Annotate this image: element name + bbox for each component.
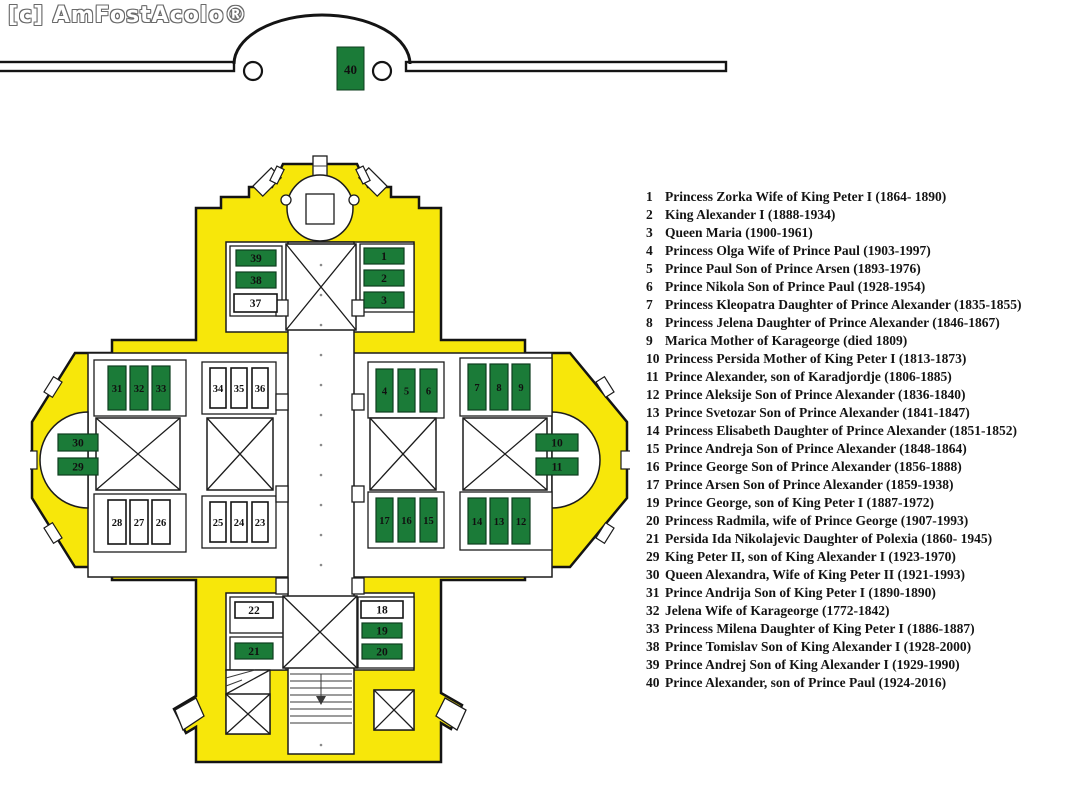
altar-table	[306, 194, 334, 224]
legend-entry-number: 10	[646, 351, 665, 369]
pier-right-outer	[463, 418, 547, 490]
legend-entry-31: 31Prince Andrija Son of King Peter I (18…	[646, 585, 1021, 603]
tomb-box-34: 34	[210, 368, 226, 408]
legend-entry-text: Prince George, son of King Peter I (1887…	[665, 495, 934, 513]
legend-entry-text: Princess Zorka Wife of King Peter I (186…	[665, 189, 946, 207]
tomb-box-7: 7	[468, 364, 486, 410]
tomb-box-32: 32	[130, 366, 148, 410]
legend-entry-number: 33	[646, 621, 665, 639]
tomb-label: 7	[474, 383, 479, 394]
tomb-label: 31	[112, 384, 123, 395]
legend-entry-number: 39	[646, 657, 665, 675]
legend-entry-number: 3	[646, 225, 665, 243]
legend-entry-text: Princess Kleopatra Daughter of Prince Al…	[665, 297, 1021, 315]
legend-entry-text: Queen Alexandra, Wife of King Peter II (…	[665, 567, 965, 585]
crypt-tomb-40: 40	[337, 47, 364, 90]
legend-entry-7: 7Princess Kleopatra Daughter of Prince A…	[646, 297, 1021, 315]
tomb-label: 37	[250, 298, 262, 310]
crypt-wall-line-right	[406, 62, 726, 71]
legend-entry-text: Princess Elisabeth Daughter of Prince Al…	[665, 423, 1017, 441]
legend-entry-text: Princess Olga Wife of Prince Paul (1903-…	[665, 243, 931, 261]
legend-entry-text: Prince Alexander, son of Prince Paul (19…	[665, 675, 946, 693]
legend-entry-8: 8Princess Jelena Daughter of Prince Alex…	[646, 315, 1021, 333]
legend-entry-text: Prince Paul Son of Prince Arsen (1893-19…	[665, 261, 921, 279]
tomb-box-2: 2	[364, 270, 404, 286]
tomb-box-6: 6	[420, 369, 437, 412]
tomb-label: 36	[255, 384, 266, 395]
legend-entry-text: Princess Milena Daughter of King Peter I…	[665, 621, 975, 639]
legend-entry-text: Prince Alexander, son of Karadjordje (18…	[665, 369, 952, 387]
tomb-label: 6	[426, 386, 431, 397]
tomb-box-12: 12	[512, 498, 530, 544]
tomb-label: 10	[551, 437, 563, 449]
crypt-window-circle-right	[373, 62, 391, 80]
legend-entry-19: 19Prince George, son of King Peter I (18…	[646, 495, 1021, 513]
tomb-label: 23	[255, 518, 266, 529]
legend-entry-9: 9Marica Mother of Karageorge (died 1809)	[646, 333, 1021, 351]
legend-entry-33: 33Princess Milena Daughter of King Peter…	[646, 621, 1021, 639]
legend-entry-number: 29	[646, 549, 665, 567]
pier-entrance	[283, 596, 357, 668]
legend-entry-number: 19	[646, 495, 665, 513]
legend-entry-17: 17Prince Arsen Son of Prince Alexander (…	[646, 477, 1021, 495]
tomb-box-14: 14	[468, 498, 486, 544]
tomb-box-29: 29	[58, 458, 98, 475]
pier-left-inner	[207, 418, 273, 490]
legend-entry-number: 21	[646, 531, 665, 549]
tomb-label: 16	[401, 516, 412, 527]
tomb-label: 25	[213, 518, 224, 529]
tomb-label: 18	[376, 604, 388, 616]
tomb-box-13: 13	[490, 498, 508, 544]
tomb-box-21: 21	[235, 643, 273, 659]
tomb-box-9: 9	[512, 364, 530, 410]
legend-entry-40: 40Prince Alexander, son of Prince Paul (…	[646, 675, 1021, 693]
legend-entry-text: Princess Radmila, wife of Prince George …	[665, 513, 968, 531]
tomb-box-33: 33	[152, 366, 170, 410]
tomb-box-27: 27	[130, 500, 148, 544]
legend-entry-16: 16Prince George Son of Prince Alexander …	[646, 459, 1021, 477]
legend-entry-text: Prince Svetozar Son of Prince Alexander …	[665, 405, 970, 423]
crypt-tomb-40-label: 40	[344, 62, 357, 77]
legend-entry-11: 11Prince Alexander, son of Karadjordje (…	[646, 369, 1021, 387]
tomb-box-17: 17	[376, 498, 393, 542]
tomb-label: 5	[404, 386, 409, 397]
tomb-label: 17	[379, 516, 390, 527]
legend-entry-3: 3Queen Maria (1900-1961)	[646, 225, 1021, 243]
legend-entry-number: 17	[646, 477, 665, 495]
legend-entry-text: King Alexander I (1888-1934)	[665, 207, 835, 225]
tomb-label: 11	[552, 461, 563, 473]
church-floor-plan: 3938371233132333435364567893029101128272…	[30, 150, 630, 805]
legend-entry-text: Princess Persida Mother of King Peter I …	[665, 351, 966, 369]
dome-niche-left	[281, 195, 291, 205]
pier-left-outer	[96, 418, 180, 490]
tomb-box-19: 19	[362, 623, 402, 638]
tomb-label: 19	[376, 625, 388, 637]
tomb-box-38: 38	[236, 272, 276, 288]
legend-entry-5: 5Prince Paul Son of Prince Arsen (1893-1…	[646, 261, 1021, 279]
tomb-box-15: 15	[420, 498, 437, 542]
tomb-box-11: 11	[536, 458, 578, 475]
tomb-label: 35	[234, 384, 245, 395]
legend-entry-14: 14Princess Elisabeth Daughter of Prince …	[646, 423, 1021, 441]
legend-entry-number: 15	[646, 441, 665, 459]
legend-entry-text: Prince Andreja Son of Prince Alexander (…	[665, 441, 967, 459]
legend-entry-12: 12Prince Aleksije Son of Prince Alexande…	[646, 387, 1021, 405]
tomb-box-26: 26	[152, 500, 170, 544]
tomb-box-30: 30	[58, 434, 98, 451]
legend-entry-32: 32Jelena Wife of Karageorge (1772-1842)	[646, 603, 1021, 621]
tomb-label: 14	[472, 517, 483, 528]
tomb-box-35: 35	[231, 368, 247, 408]
legend-entry-number: 31	[646, 585, 665, 603]
tomb-label: 22	[248, 605, 260, 617]
tomb-box-23: 23	[252, 502, 268, 542]
legend-entry-38: 38Prince Tomislav Son of King Alexander …	[646, 639, 1021, 657]
tomb-box-1: 1	[364, 248, 404, 264]
legend-entry-number: 14	[646, 423, 665, 441]
tomb-label: 2	[381, 273, 387, 285]
tomb-label: 32	[134, 384, 145, 395]
tomb-label: 4	[382, 386, 388, 397]
tomb-label: 34	[213, 384, 224, 395]
legend-entry-number: 6	[646, 279, 665, 297]
legend-entry-number: 12	[646, 387, 665, 405]
legend-entry-30: 30Queen Alexandra, Wife of King Peter II…	[646, 567, 1021, 585]
tomb-label: 26	[156, 518, 167, 529]
legend-entry-1: 1Princess Zorka Wife of King Peter I (18…	[646, 189, 1021, 207]
legend-entry-text: Jelena Wife of Karageorge (1772-1842)	[665, 603, 889, 621]
crypt-window-circle-left	[244, 62, 262, 80]
tomb-box-10: 10	[536, 434, 578, 451]
legend-entry-number: 32	[646, 603, 665, 621]
tomb-label: 27	[134, 518, 145, 529]
tomb-label: 20	[376, 646, 388, 658]
tomb-box-24: 24	[231, 502, 247, 542]
legend-entry-text: Prince Nikola Son of Prince Paul (1928-1…	[665, 279, 925, 297]
tomb-label: 29	[72, 461, 84, 473]
tomb-box-22: 22	[235, 602, 273, 618]
tomb-label: 8	[496, 383, 501, 394]
legend-entry-text: Prince Arsen Son of Prince Alexander (18…	[665, 477, 953, 495]
crypt-wall-line-left	[0, 62, 234, 71]
tomb-box-31: 31	[108, 366, 126, 410]
page: { "watermark": { "text": "[c] AmFostAcol…	[0, 0, 1066, 800]
tomb-label: 38	[250, 275, 262, 287]
legend-entry-number: 20	[646, 513, 665, 531]
tomb-label: 15	[423, 516, 434, 527]
legend-entry-15: 15Prince Andreja Son of Prince Alexander…	[646, 441, 1021, 459]
legend-entry-number: 13	[646, 405, 665, 423]
legend-entry-6: 6Prince Nikola Son of Prince Paul (1928-…	[646, 279, 1021, 297]
tomb-box-16: 16	[398, 498, 415, 542]
tomb-label: 9	[518, 383, 523, 394]
tomb-box-39: 39	[236, 250, 276, 266]
tomb-box-20: 20	[362, 644, 402, 659]
watermark: [c] AmFostAcolo®	[8, 3, 247, 28]
legend-entry-number: 4	[646, 243, 665, 261]
pier-right-inner	[370, 418, 436, 490]
tomb-label: 1	[381, 251, 387, 263]
pier-stair-left	[226, 694, 270, 734]
tomb-label: 13	[494, 517, 505, 528]
legend-entry-text: Queen Maria (1900-1961)	[665, 225, 813, 243]
legend-entry-text: King Peter II, son of King Alexander I (…	[665, 549, 956, 567]
tomb-label: 3	[381, 295, 387, 307]
legend-entry-number: 5	[646, 261, 665, 279]
tomb-box-5: 5	[398, 369, 415, 412]
tomb-label: 33	[156, 384, 167, 395]
legend-entry-number: 16	[646, 459, 665, 477]
legend-entry-number: 11	[646, 369, 665, 387]
tomb-label: 30	[72, 437, 84, 449]
legend-entry-number: 38	[646, 639, 665, 657]
tomb-box-18: 18	[361, 601, 403, 618]
tomb-label: 28	[112, 518, 123, 529]
legend-entry-39: 39Prince Andrej Son of King Alexander I …	[646, 657, 1021, 675]
legend-list: 1Princess Zorka Wife of King Peter I (18…	[646, 189, 1021, 693]
tomb-label: 24	[234, 518, 245, 529]
legend-entry-number: 7	[646, 297, 665, 315]
legend-entry-text: Prince Andrej Son of King Alexander I (1…	[665, 657, 960, 675]
tomb-box-28: 28	[108, 500, 126, 544]
legend-entry-number: 9	[646, 333, 665, 351]
legend-entry-text: Marica Mother of Karageorge (died 1809)	[665, 333, 907, 351]
tomb-box-4: 4	[376, 369, 393, 412]
legend-entry-text: Prince George Son of Prince Alexander (1…	[665, 459, 962, 477]
legend-entry-number: 1	[646, 189, 665, 207]
legend-entry-4: 4Princess Olga Wife of Prince Paul (1903…	[646, 243, 1021, 261]
tomb-box-3: 3	[364, 292, 404, 308]
crypt-arch	[234, 15, 410, 64]
tomb-box-25: 25	[210, 502, 226, 542]
legend-entry-number: 30	[646, 567, 665, 585]
legend-entry-10: 10Princess Persida Mother of King Peter …	[646, 351, 1021, 369]
pier-altar	[286, 244, 356, 330]
tomb-box-36: 36	[252, 368, 268, 408]
legend-entry-text: Prince Aleksije Son of Prince Alexander …	[665, 387, 965, 405]
legend-entry-2: 2King Alexander I (1888-1934)	[646, 207, 1021, 225]
tomb-box-37: 37	[234, 294, 277, 312]
legend-entry-20: 20Princess Radmila, wife of Prince Georg…	[646, 513, 1021, 531]
legend-entry-21: 21Persida Ida Nikolajevic Daughter of Po…	[646, 531, 1021, 549]
legend-entry-text: Prince Tomislav Son of King Alexander I …	[665, 639, 971, 657]
legend-entry-number: 8	[646, 315, 665, 333]
tomb-label: 39	[250, 253, 262, 265]
legend-entry-29: 29King Peter II, son of King Alexander I…	[646, 549, 1021, 567]
dome-niche-right	[349, 195, 359, 205]
tomb-label: 21	[248, 646, 260, 658]
legend-entry-text: Princess Jelena Daughter of Prince Alexa…	[665, 315, 1000, 333]
legend-entry-13: 13Prince Svetozar Son of Prince Alexande…	[646, 405, 1021, 423]
legend-entry-number: 2	[646, 207, 665, 225]
legend-entry-number: 40	[646, 675, 665, 693]
legend-entry-text: Prince Andrija Son of King Peter I (1890…	[665, 585, 936, 603]
pier-stair-right	[374, 690, 414, 730]
tomb-label: 12	[516, 517, 527, 528]
legend-entry-text: Persida Ida Nikolajevic Daughter of Pole…	[665, 531, 992, 549]
tomb-box-8: 8	[490, 364, 508, 410]
